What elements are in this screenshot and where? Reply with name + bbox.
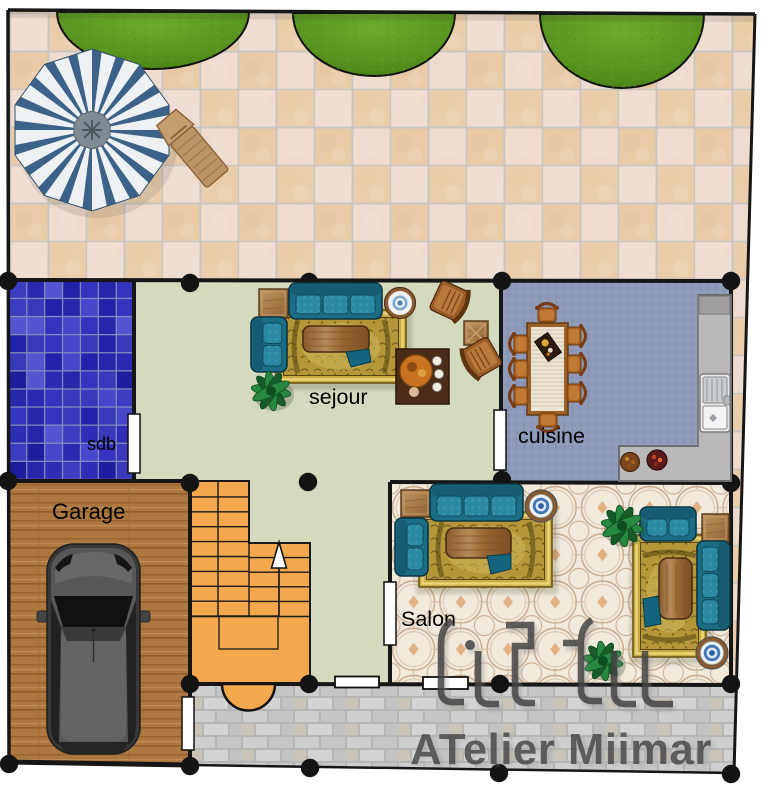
svg-text:sdb: sdb	[87, 434, 116, 454]
svg-text:cuisine: cuisine	[518, 424, 585, 448]
svg-text:Garage: Garage	[52, 499, 125, 524]
svg-text:ATelier Miimar: ATelier Miimar	[410, 726, 712, 774]
svg-text:sejour: sejour	[309, 385, 368, 409]
